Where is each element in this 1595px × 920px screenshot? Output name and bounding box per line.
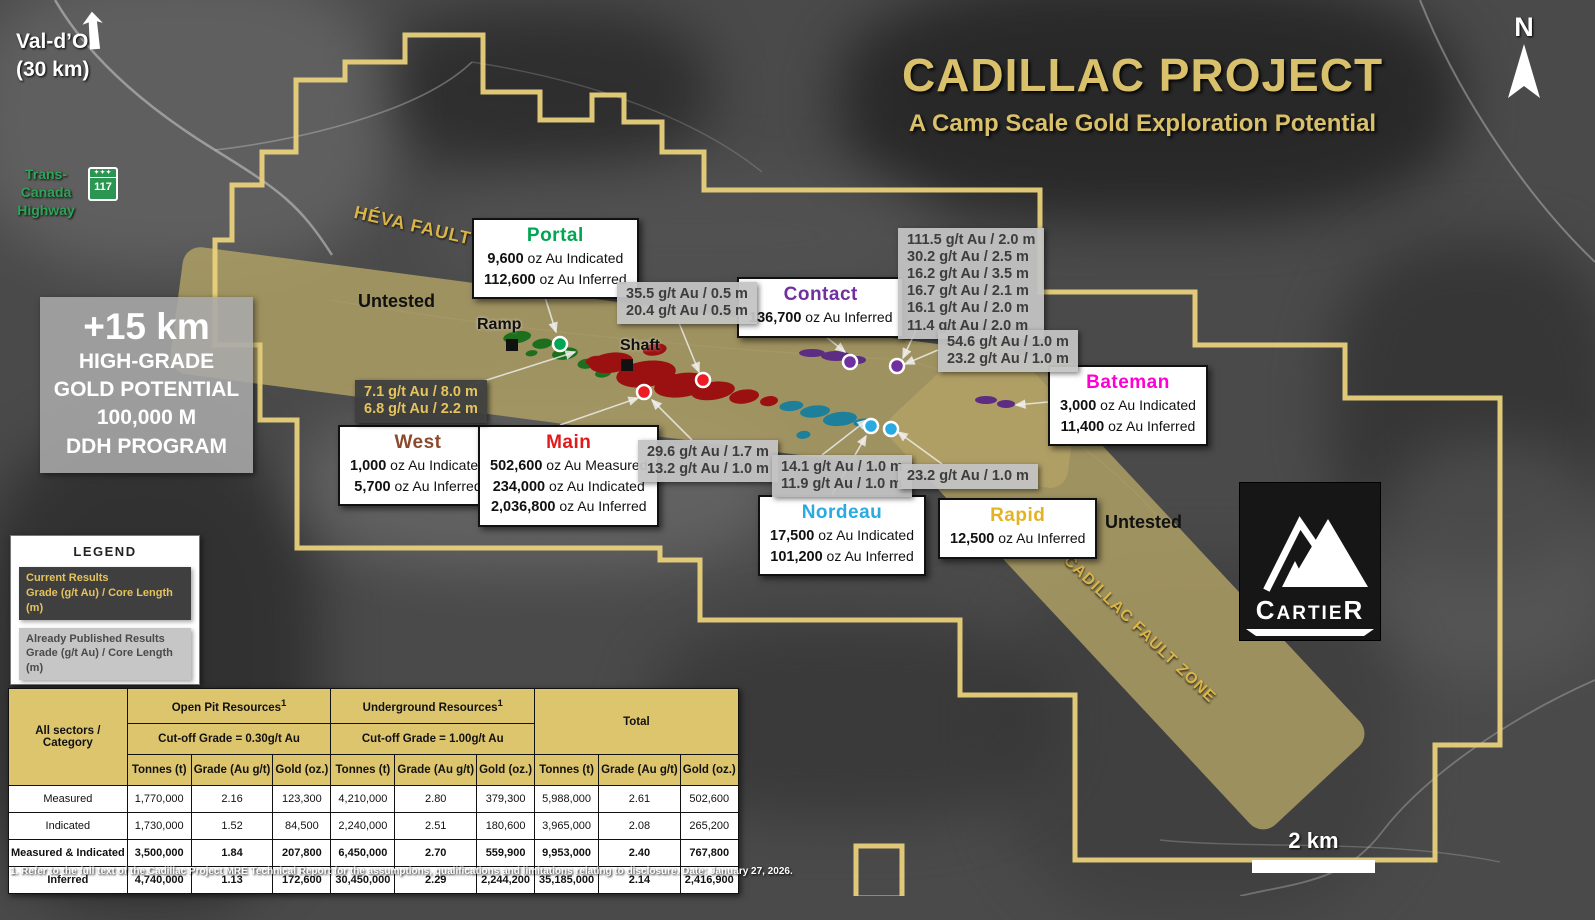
table-cell: 3,500,000 xyxy=(127,840,191,867)
zone-stat: 1,000 oz Au Indicated xyxy=(350,456,486,477)
table-cell: Indicated xyxy=(9,813,128,840)
legend-current-swatch: Current Results Grade (g/t Au) / Core Le… xyxy=(19,567,191,620)
zone-stat: 2,036,800 oz Au Inferred xyxy=(490,497,647,518)
zone-card-contact: Contact 136,700 oz Au Inferred xyxy=(737,277,904,338)
promo-line: +15 km xyxy=(44,307,249,348)
zone-stat: 502,600 oz Au Measured xyxy=(490,456,647,477)
published-result-box: 14.1 g/t Au / 1.0 m 11.9 g/t Au / 1.0 m xyxy=(772,455,912,497)
main-dot-1 xyxy=(637,385,651,399)
table-cell: 4,210,000 xyxy=(331,786,395,813)
table-header-underground-cutoff: Cut-off Grade = 1.00g/t Au xyxy=(331,724,535,755)
published-result-box: 35.5 g/t Au / 0.5 m 20.4 g/t Au / 0.5 m xyxy=(617,282,757,324)
assay-line: 35.5 g/t Au / 0.5 m xyxy=(626,286,748,303)
untested-east-label: Untested xyxy=(1105,512,1182,533)
assay-line: 7.1 g/t Au / 8.0 m xyxy=(364,384,478,401)
zone-stat: 17,500 oz Au Indicated xyxy=(770,526,914,547)
contact-dot-2 xyxy=(890,359,904,373)
table-cell: 1,770,000 xyxy=(127,786,191,813)
zone-stat: 101,200 oz Au Inferred xyxy=(770,547,914,568)
zone-card-portal: Portal 9,600 oz Au Indicated 112,600 oz … xyxy=(472,218,639,299)
promo-line: 100,000 M xyxy=(44,404,249,432)
table-cell: Measured & Indicated xyxy=(9,840,128,867)
main-deposit xyxy=(585,328,779,431)
table-cell: 1.52 xyxy=(191,813,273,840)
north-arrow-icon xyxy=(1504,44,1544,108)
shaft-label: Shaft xyxy=(620,337,660,355)
table-cell: 2.08 xyxy=(599,813,681,840)
published-result-box: 54.6 g/t Au / 1.0 m 23.2 g/t Au / 1.0 m xyxy=(938,330,1078,372)
val-dor-arrow-icon xyxy=(76,8,112,52)
published-result-box: 111.5 g/t Au / 2.0 m 30.2 g/t Au / 2.5 m… xyxy=(898,228,1044,339)
table-cell: 3,965,000 xyxy=(535,813,599,840)
table-cell: 559,900 xyxy=(477,840,535,867)
assay-line: 30.2 g/t Au / 2.5 m xyxy=(907,249,1035,266)
table-cell: 2.80 xyxy=(395,786,477,813)
assay-line: 6.8 g/t Au / 2.2 m xyxy=(364,401,478,418)
table-cell: 2.51 xyxy=(395,813,477,840)
zone-title: Bateman xyxy=(1060,372,1196,394)
table-cell: 502,600 xyxy=(680,786,738,813)
table-cell: 123,300 xyxy=(273,786,331,813)
current-result-box: 7.1 g/t Au / 8.0 m 6.8 g/t Au / 2.2 m xyxy=(355,380,487,423)
portal-dot xyxy=(553,337,567,351)
table-subheader: Gold (oz.) xyxy=(680,755,738,786)
zone-title: Contact xyxy=(749,284,892,306)
zone-title: Nordeau xyxy=(770,502,914,524)
table-header-category: All sectors /Category xyxy=(9,689,128,786)
tch-line2: Highway xyxy=(6,201,86,219)
table-cell: 2.61 xyxy=(599,786,681,813)
cadillac-project-map: { "header": { "title": "CADILLAC PROJECT… xyxy=(0,0,1595,896)
assay-line: 20.4 g/t Au / 0.5 m xyxy=(626,303,748,320)
table-header-openpit: Open Pit Resources1 xyxy=(127,689,331,724)
table-cell: 1.84 xyxy=(191,840,273,867)
promo-line: GOLD POTENTIAL xyxy=(44,376,249,404)
zone-card-rapid: Rapid 12,500 oz Au Inferred xyxy=(938,498,1097,559)
zone-card-main: Main 502,600 oz Au Measured 234,000 oz A… xyxy=(478,425,659,527)
zone-stat: 9,600 oz Au Indicated xyxy=(484,249,627,270)
zone-title: Main xyxy=(490,432,647,454)
shield-crown: ✦✦✦ xyxy=(90,169,116,178)
table-cell: 379,300 xyxy=(477,786,535,813)
table-cell: 5,988,000 xyxy=(535,786,599,813)
legend-panel: LEGEND Current Results Grade (g/t Au) / … xyxy=(10,535,200,685)
zone-stat: 5,700 oz Au Inferred xyxy=(350,477,486,498)
zone-stat: 112,600 oz Au Inferred xyxy=(484,270,627,291)
tch-line1: Trans-Canada xyxy=(6,165,86,201)
scale-label: 2 km xyxy=(1252,828,1375,854)
legend-published-title: Already Published Results xyxy=(26,632,184,647)
table-cell: 2.70 xyxy=(395,840,477,867)
zone-title: Rapid xyxy=(950,505,1085,527)
promo-line: DDH PROGRAM xyxy=(44,433,249,461)
project-title: CADILLAC PROJECT xyxy=(870,48,1415,102)
assay-line: 23.2 g/t Au / 1.0 m xyxy=(907,468,1029,485)
footnote: 1. Refer to the full text of the Cadilla… xyxy=(10,866,793,877)
table-cell: 180,600 xyxy=(477,813,535,840)
assay-line: 23.2 g/t Au / 1.0 m xyxy=(947,351,1069,368)
table-cell: 265,200 xyxy=(680,813,738,840)
project-subtitle: A Camp Scale Gold Exploration Potential xyxy=(870,110,1415,138)
zone-stat: 136,700 oz Au Inferred xyxy=(749,308,892,329)
trans-canada-label: Trans-Canada Highway xyxy=(6,165,86,220)
table-row: Measured 1,770,000 2.16 123,300 4,210,00… xyxy=(9,786,739,813)
shield-number: 117 xyxy=(90,178,116,196)
table-subheader: Tonnes (t) xyxy=(127,755,191,786)
resource-table: All sectors /Category Open Pit Resources… xyxy=(8,688,739,894)
untested-west-label: Untested xyxy=(358,291,435,312)
assay-line: 11.9 g/t Au / 1.0 m xyxy=(781,476,903,493)
scale-bar xyxy=(1252,860,1375,873)
ramp-label: Ramp xyxy=(477,316,521,334)
table-cell: 2.40 xyxy=(599,840,681,867)
table-cell: 767,800 xyxy=(680,840,738,867)
table-header-underground: Underground Resources1 xyxy=(331,689,535,724)
assay-line: 29.6 g/t Au / 1.7 m xyxy=(647,444,769,461)
table-row: Measured & Indicated 3,500,000 1.84 207,… xyxy=(9,840,739,867)
shaft-marker xyxy=(621,359,633,371)
nordeau-dot-2 xyxy=(884,422,898,436)
table-cell: 6,450,000 xyxy=(331,840,395,867)
zone-title: Portal xyxy=(484,225,627,247)
north-indicator: N xyxy=(1500,12,1548,43)
zone-card-bateman: Bateman 3,000 oz Au Indicated 11,400 oz … xyxy=(1048,365,1208,446)
legend-current-sub: Grade (g/t Au) / Core Length (m) xyxy=(26,586,184,616)
table-cell: 2.16 xyxy=(191,786,273,813)
assay-line: 13.2 g/t Au / 1.0 m xyxy=(647,461,769,478)
table-cell: 207,800 xyxy=(273,840,331,867)
nordeau-deposit xyxy=(779,393,873,441)
legend-published-swatch: Already Published Results Grade (g/t Au)… xyxy=(19,628,191,681)
zone-stat: 11,400 oz Au Inferred xyxy=(1060,417,1196,438)
zone-card-west: West 1,000 oz Au Indicated 5,700 oz Au I… xyxy=(338,425,498,506)
property-boundary-tab xyxy=(856,846,902,896)
table-subheader: Grade (Au g/t) xyxy=(599,755,681,786)
table-cell: 2,240,000 xyxy=(331,813,395,840)
table-subheader: Gold (oz.) xyxy=(273,755,331,786)
high-grade-potential-box: +15 km HIGH-GRADE GOLD POTENTIAL 100,000… xyxy=(40,297,253,473)
val-dor-distance: (30 km) xyxy=(16,56,97,84)
assay-line: 16.2 g/t Au / 3.5 m xyxy=(907,266,1035,283)
table-subheader: Tonnes (t) xyxy=(535,755,599,786)
nordeau-dot-1 xyxy=(864,419,878,433)
zone-card-nordeau: Nordeau 17,500 oz Au Indicated 101,200 o… xyxy=(758,495,926,576)
table-subheader: Gold (oz.) xyxy=(477,755,535,786)
zone-stat: 3,000 oz Au Indicated xyxy=(1060,396,1196,417)
table-subheader: Tonnes (t) xyxy=(331,755,395,786)
main-dot-2 xyxy=(696,373,710,387)
highway-117-shield-icon: ✦✦✦ 117 xyxy=(88,167,118,201)
ramp-marker xyxy=(506,339,518,351)
assay-line: 16.1 g/t Au / 2.0 m xyxy=(907,300,1035,317)
page-title: CADILLAC PROJECT A Camp Scale Gold Explo… xyxy=(870,48,1415,138)
table-header-openpit-cutoff: Cut-off Grade = 0.30g/t Au xyxy=(127,724,331,755)
promo-line: HIGH-GRADE xyxy=(44,348,249,376)
assay-line: 54.6 g/t Au / 1.0 m xyxy=(947,334,1069,351)
table-cell: 1,730,000 xyxy=(127,813,191,840)
zone-stat: 12,500 oz Au Inferred xyxy=(950,529,1085,550)
zone-title: West xyxy=(350,432,486,454)
table-cell: Measured xyxy=(9,786,128,813)
table-cell: 9,953,000 xyxy=(535,840,599,867)
published-result-box: 29.6 g/t Au / 1.7 m 13.2 g/t Au / 1.0 m xyxy=(638,440,778,482)
table-header-total: Total xyxy=(535,689,739,755)
cartier-wordmark: CARTIER xyxy=(1240,595,1380,626)
table-subheader: Grade (Au g/t) xyxy=(395,755,477,786)
assay-line: 14.1 g/t Au / 1.0 m xyxy=(781,459,903,476)
published-result-box: 23.2 g/t Au / 1.0 m xyxy=(898,464,1038,489)
legend-title: LEGEND xyxy=(11,544,199,559)
legend-current-title: Current Results xyxy=(26,571,184,586)
table-row: Indicated 1,730,000 1.52 84,500 2,240,00… xyxy=(9,813,739,840)
table-cell: 84,500 xyxy=(273,813,331,840)
assay-line: 111.5 g/t Au / 2.0 m xyxy=(907,232,1035,249)
legend-published-sub: Grade (g/t Au) / Core Length (m) xyxy=(26,646,184,676)
assay-line: 16.7 g/t Au / 2.1 m xyxy=(907,283,1035,300)
zone-stat: 234,000 oz Au Indicated xyxy=(490,477,647,498)
contact-dot-1 xyxy=(843,355,857,369)
table-subheader: Grade (Au g/t) xyxy=(191,755,273,786)
north-label: N xyxy=(1500,12,1548,43)
cartier-logo: CARTIER xyxy=(1240,483,1380,640)
